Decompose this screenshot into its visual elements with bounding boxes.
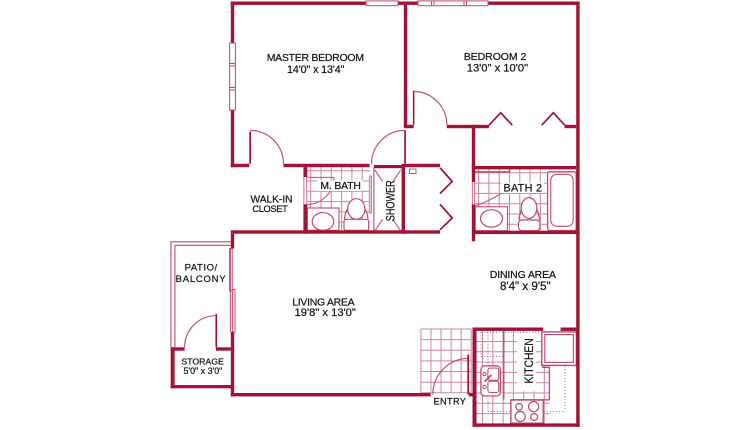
svg-text:SHOWER: SHOWER: [384, 180, 397, 221]
svg-text:13'0" x 10'0": 13'0" x 10'0": [467, 62, 528, 74]
svg-text:KITCHEN: KITCHEN: [523, 338, 536, 383]
svg-text:ENTRY: ENTRY: [434, 397, 467, 407]
svg-text:MASTER BEDROOM: MASTER BEDROOM: [267, 52, 364, 64]
svg-text:BATH 2: BATH 2: [503, 182, 542, 194]
svg-text:M. BATH: M. BATH: [320, 181, 360, 192]
svg-text:STORAGE: STORAGE: [181, 356, 224, 366]
svg-text:14'0" x 13'4": 14'0" x 13'4": [287, 64, 345, 76]
svg-text:5'0" x 3'0": 5'0" x 3'0": [183, 366, 222, 376]
svg-text:BEDROOM 2: BEDROOM 2: [464, 51, 527, 63]
svg-text:CLOSET: CLOSET: [252, 204, 288, 214]
svg-text:BALCONY: BALCONY: [176, 274, 227, 285]
svg-text:19'8" x 13'0": 19'8" x 13'0": [295, 307, 356, 319]
svg-text:8'4" x 9'5": 8'4" x 9'5": [500, 280, 551, 293]
svg-text:PATIO/: PATIO/: [185, 263, 218, 274]
